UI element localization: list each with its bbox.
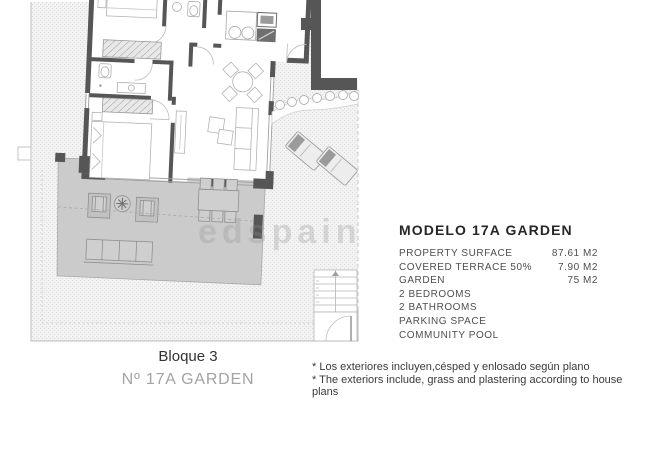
spec-row: 2 BATHROOMS [399,301,598,315]
watermark-text: edspain [198,213,361,251]
kitchen-icons [226,11,277,42]
spec-label: PARKING SPACE [399,315,486,329]
armchair-icon [136,197,159,222]
block-label: Bloque 3 [88,348,288,365]
stairs-icon [314,270,357,341]
spec-row: COVERED TERRACE 50% 7.90 M2 [399,261,598,275]
footnote-en: * The exteriors include, grass and plast… [312,374,647,399]
spec-row: COMMUNITY POOL [399,329,598,343]
footnotes: * Los exteriores incluyen,césped y enlos… [312,361,647,399]
floor-plan-page: edspain MODELO 17A GARDEN PROPERTY SURFA… [0,0,650,450]
spec-value: 87.61 M2 [552,247,598,261]
spec-row: PARKING SPACE [399,315,598,329]
spec-label: 2 BEDROOMS [399,288,471,302]
sofa-icon [234,108,259,171]
spec-label: COVERED TERRACE 50% [399,261,532,275]
wall-jamb [55,153,65,162]
spec-value: 75 M2 [567,274,598,288]
spec-row: PROPERTY SURFACE 87.61 M2 [399,247,598,261]
footnote-es: * Los exteriores incluyen,césped y enlos… [312,361,647,374]
info-panel: MODELO 17A GARDEN PROPERTY SURFACE 87.61… [399,222,598,342]
spec-label: 2 BATHROOMS [399,301,477,315]
wardrobe-icon [103,40,162,60]
spec-value: 7.90 M2 [558,261,598,275]
spec-row: GARDEN 75 M2 [399,274,598,288]
unit-label: Nº 17A GARDEN [88,371,288,389]
spec-label: GARDEN [399,274,445,288]
armchair-icon [88,193,111,218]
dresser-icon [175,111,187,153]
info-panel-title: MODELO 17A GARDEN [399,222,598,238]
spec-label: COMMUNITY POOL [399,329,499,343]
wardrobe2-icon [102,98,153,114]
side-table-plant-icon [114,195,131,212]
spec-label: PROPERTY SURFACE [399,247,512,261]
spec-row: 2 BEDROOMS [399,288,598,302]
